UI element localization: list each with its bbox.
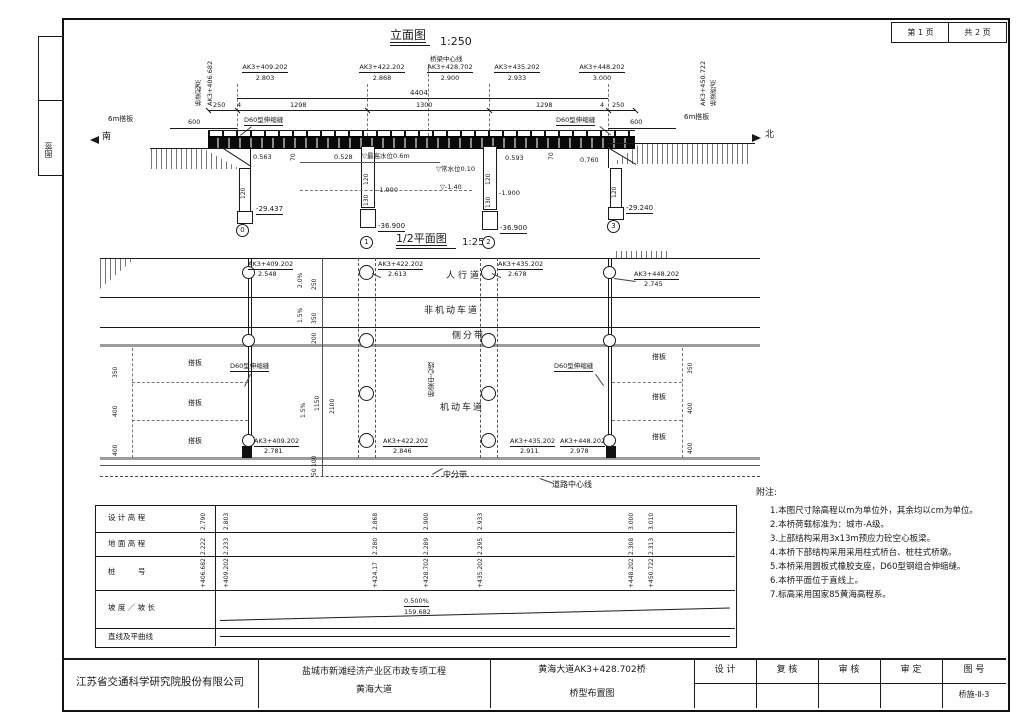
design-elev: 2.803 [224,506,230,530]
ground-elev: 2.280 [373,533,379,555]
axis-bubble: 2 [482,236,495,249]
table-row-label: 直线及平曲线 [108,633,153,641]
margin-label: 图签 [45,118,53,158]
cap-elev: 0.528 [334,154,353,161]
sheet-total: 共 2 页 [964,28,990,37]
table-row-label: 设 计 高 程 [108,514,145,522]
member-dim: 120 [612,176,618,198]
company-name: 江苏省交通科学研究院股份有限公司 [62,677,258,688]
plan-callout: AK3+435.202 [510,438,555,445]
member-dim: 130 [364,190,370,206]
ground-elev: 2.308 [629,533,635,555]
plan-deck-edge [100,457,760,460]
alignment-line [220,636,730,637]
axis-bubble: 3 [607,220,620,233]
slab-label: 搭板 [188,360,202,367]
station-text: AK3+448.202 [560,437,605,447]
design-elev: 3.000 [629,506,635,530]
cone-hatch [616,251,670,258]
slab-divider [132,420,248,421]
member-dim: 120 [241,177,247,199]
table-row-label: 桩 号 [108,568,146,576]
elevation-value: 2.803 [235,75,295,82]
sig-review-label: 审 核 [818,666,880,675]
table-line [95,532,735,533]
pile-bottom-elev: -36.900 [500,225,527,232]
slab-divider [132,382,248,383]
pier-pile [482,211,498,230]
pile-circle [481,265,496,280]
expansion-joint-label: D60型伸缩缝 [554,363,593,370]
dim-label: 1150 [315,385,321,411]
project-name-line1: 盐城市新滩经济产业区市政专项工程 [258,668,490,677]
station-text: AK3+422.202 [378,260,423,270]
bridge-end-station: AK3+450.722 [700,56,707,106]
dim-label: 250 [213,102,225,109]
titleblock-line [258,658,259,708]
elevation-title: 立面图 [390,29,426,43]
joint-line [608,258,609,458]
road-centerline-label: 道路中心线 [552,481,592,489]
expansion-joint-label: D60型伸缩缝 [230,363,269,370]
bridge-start-label: 桥梁起点 [196,60,203,106]
station-callout: AK3+428.702 [420,64,480,71]
dim-line [608,128,676,129]
station-text: AK3+409.202 [248,260,293,270]
drawing-no-label: 图 号 [942,666,1006,675]
slab-edge [682,348,683,458]
ground-elev: 2.233 [224,533,230,555]
dim-label: 2100 [330,388,336,414]
plan-title: 1/2平面图 [396,233,447,246]
station-text: AK3+422.202 [383,437,428,447]
note-item: 5.本桥采用圆板式橡胶支座，D60型钢组合伸缩缝。 [770,563,965,572]
dim-line [237,98,608,99]
pier-column-plan [358,258,376,458]
joint-line [611,258,612,458]
axis-number: 0 [240,226,244,234]
abutment-body [606,446,616,458]
drawing-name-line2: 桥型布置图 [490,690,694,699]
bridge-deck [208,136,635,149]
sig-check-label: 复 核 [756,666,818,675]
station-text: AK3+435.202 [494,63,539,73]
dim-label: 400 [688,432,694,454]
joint-text: D60型伸缩缝 [556,116,595,126]
joint-line [248,258,249,458]
elevation-value: 2.933 [487,75,547,82]
member-dim: 130 [486,192,492,208]
dim-label: 350 [113,356,119,378]
bridge-end-label: 桥梁终点 [711,60,718,106]
station-value: +435.202 [478,558,484,588]
design-elev: 2.900 [424,506,430,530]
slab-label: 搭板 [652,354,666,361]
notes-title: 附注: [756,489,777,498]
table-line [95,556,735,557]
profile-table [95,505,737,648]
table-row-label: 坡 度 ／ 坡 长 [108,604,155,612]
station-callout: AK3+409.202 [235,64,295,71]
station-callout: AK3+448.202 [572,64,632,71]
slope-label: 1.5% [298,303,304,323]
south-label: 南 [102,133,111,142]
plan-callout: AK3+422.202 [378,261,423,268]
station-value: +409.202 [224,558,230,588]
plan-callout-value: 2.781 [264,448,283,455]
plan-callout-value: 2.978 [570,448,589,455]
dim-label: 100 [312,455,318,467]
dim-label: 1300 [416,102,433,109]
slope-label: 1.5% [301,398,307,418]
slope-label: 2.0% [298,268,304,288]
table-line [215,505,216,646]
sig-design-label: 设 计 [694,666,756,675]
water-line [300,162,440,163]
pile-circle [359,433,374,448]
sheet-total-cell: 共 2 页 [948,22,1007,43]
normal-water-level: ▽常水位0.10 [436,166,475,173]
dim-label: 400 [113,434,119,456]
bridge-centerline-label: 桥梁中心线 [430,56,463,63]
design-elev: 2.868 [373,506,379,530]
abutment-face [608,147,609,168]
member-dim: 70 [291,149,297,161]
table-line [95,628,735,629]
station-text: AK3+409.202 [254,437,299,447]
axis-number: 1 [364,238,368,246]
station-text: AK3+448.202 [634,270,679,280]
slab-label: 搭板 [188,438,202,445]
dim-label: 350 [688,352,694,374]
ground-elev: 2.295 [478,533,484,555]
expansion-joint-label: D60型伸缩缝 [244,117,283,124]
member-dim: 120 [364,165,370,185]
design-elev: 2.790 [201,506,207,530]
plan-edge-line [100,258,760,259]
station-value: +450.722 [649,558,655,588]
station-text: AK3+422.202 [359,63,404,73]
dim-label: 4 [237,102,241,109]
station-value: +428.702 [424,558,430,588]
dim-label: 400 [113,395,119,417]
plan-callout-value: 2.846 [393,448,412,455]
plan-lane-line [100,297,760,298]
drawing-name-line1: 黄海大道AK3+428.702桥 [490,666,694,675]
abutment-body [242,446,252,458]
pile-circle [481,386,496,401]
dim-line [170,128,237,129]
grade-value: 0.500% [404,598,429,605]
plan-callout-value: 2.613 [388,271,407,278]
axis-number: 3 [611,222,615,230]
plan-lane-line [100,327,760,328]
note-item: 1.本图尺寸除高程以m为单位外，其余均以cm为单位。 [770,507,978,516]
dim-line [208,110,635,111]
dim-label: 600 [188,119,200,126]
lane-label-nonmotor: 非机动车道 [424,307,479,316]
approach-slab-label: 6m搭板 [108,116,133,123]
south-arrow-icon [90,136,99,144]
north-arrow-icon [752,134,761,142]
high-water-level: ▽最高水位0.6m [362,153,410,160]
grade-length: 159.682 [404,609,431,616]
elev-text: -36.900 [378,222,405,232]
axis-bubble: 0 [236,224,249,237]
cap-elev: -1.900 [499,190,520,197]
plan-callout-value: 2.911 [520,448,539,455]
pile-circle [242,334,255,347]
pier-pile [360,209,376,228]
ground-line-right [608,143,755,144]
station-callout: AK3+422.202 [352,64,412,71]
plan-callout-value: 2.745 [644,281,663,288]
pile-bottom-elev: -29.240 [626,205,653,212]
dim-label: 250 [612,102,624,109]
ground-elev: 2.289 [424,533,430,555]
plan-callout: AK3+448.202 [634,271,679,278]
plan-callout: AK3+435.202 [498,261,543,268]
dim-label: 50 [312,467,318,476]
pile-circle [359,333,374,348]
pile-circle [481,433,496,448]
joint-text: D60型伸缩缝 [554,362,593,372]
axis-number: 2 [486,238,490,246]
joint-text: D60型伸缩缝 [230,362,269,372]
elevation-value: 2.868 [352,75,412,82]
plan-callout: AK3+409.202 [248,261,293,268]
pile-bottom-elev: -29.437 [256,206,283,213]
lane-label-sidewalk: 人行道 [446,272,482,281]
member-dim: 120 [486,165,492,185]
member-dim: 70 [549,148,555,160]
note-item: 7.标高采用国家85黄海高程系。 [770,591,891,600]
expansion-joint-label: D60型伸缩缝 [556,117,595,124]
station-text: AK3+435.202 [498,260,543,270]
pile-bottom-elev: -36.900 [378,223,405,230]
elev-text: -36.900 [500,224,527,234]
approach-slab-label: 6m搭板 [684,114,709,121]
slab-edge [132,348,133,458]
plan-callout-value: 2.548 [258,271,277,278]
plan-callout: AK3+448.202 [560,438,605,445]
dim-label: 4 [600,102,604,109]
pile-circle [603,334,616,347]
dim-label: 1298 [290,102,307,109]
slab-label: 搭板 [188,400,202,407]
dim-label: 1298 [536,102,553,109]
elevation-value: 2.900 [420,75,480,82]
ground-elev: 2.222 [201,533,207,555]
sheet-number: 第 1 页 [907,28,933,37]
binding-box-top [38,36,63,102]
bridge-start-station: AK3+406.682 [207,56,214,106]
dim-label: 600 [630,119,642,126]
dim-label: 200 [312,328,318,344]
elev-text: -29.437 [256,205,283,215]
dim-total: 4404 [410,90,428,97]
pile-toe [237,211,253,224]
pile-circle [359,386,374,401]
station-text: AK3+448.202 [579,63,624,73]
bridge-centerline-label-plan: 桥梁中心线 [428,335,435,397]
dim-line [322,258,323,476]
median-label: 中分带 [443,471,467,479]
ground-elev: 2.313 [649,533,655,555]
note-item: 3.上部结构采用3x13m预应力砼空心板梁。 [770,535,935,544]
north-label: 北 [765,131,774,140]
riverbed-line [300,190,472,191]
pier-column-plan [480,258,498,458]
pile-toe [608,207,624,220]
design-elev: 2.933 [478,506,484,530]
drawing-number: 桥施-Ⅱ-3 [942,691,1006,699]
axis-bubble: 1 [360,236,373,249]
elevation-value: 3.000 [572,75,632,82]
project-name-line2: 黄海大道 [258,686,490,695]
sig-approve-label: 审 定 [880,666,942,675]
plan-callout-value: 2.678 [508,271,527,278]
grade-text: 0.500% [404,597,429,607]
cap-elev: 0.760 [580,157,599,164]
station-value: +424.17 [373,558,379,588]
station-text: AK3+409.202 [242,63,287,73]
road-centerline [100,476,760,477]
table-row-label: 地 面 高 程 [108,540,145,548]
slab-label: 搭板 [652,434,666,441]
station-value: +406.682 [201,558,207,588]
station-text: AK3+428.702 [427,63,472,73]
drawing-sheet: 图签 第 1 页 共 2 页 立面图 1:250 桥梁中心线 桥梁起点 AK3+… [0,0,1024,724]
plan-median-line [100,465,760,466]
note-item: 6.本桥平面位于直线上。 [770,577,863,586]
slab-divider [612,382,682,383]
note-item: 4.本桥下部结构采用采用柱式桥台、桩柱式桥墩。 [770,549,957,558]
dim-label: 250 [312,266,318,290]
titleblock-line [694,683,1006,684]
elev-text: -29.240 [626,204,653,214]
slab-divider [612,420,682,421]
lane-label-motor: 机动车道 [440,404,484,413]
joint-text: D60型伸缩缝 [244,116,283,126]
sheet-number-cell: 第 1 页 [891,22,950,43]
plan-callout: AK3+409.202 [254,438,299,445]
dim-label: 400 [688,392,694,414]
plan-title-underline [396,248,456,249]
elevation-scale: 1:250 [440,36,472,47]
table-line [95,590,735,591]
titleblock-line [62,658,1006,660]
lane-label-sidestrip: 侧分带 [452,332,485,341]
note-item: 2.本桥荷载标准为：城市-A级。 [770,521,889,530]
design-elev: 3.010 [649,506,655,530]
dim-label: 350 [312,302,318,324]
plan-callout: AK3+422.202 [383,438,428,445]
cap-elev: 0.593 [505,155,524,162]
station-callout: AK3+435.202 [487,64,547,71]
station-text: AK3+435.202 [510,437,555,447]
cap-elev: 0.563 [253,154,272,161]
joint-line [251,258,252,458]
title-underline [390,45,430,46]
station-value: +448.202 [629,558,635,588]
slab-label: 搭板 [652,394,666,401]
